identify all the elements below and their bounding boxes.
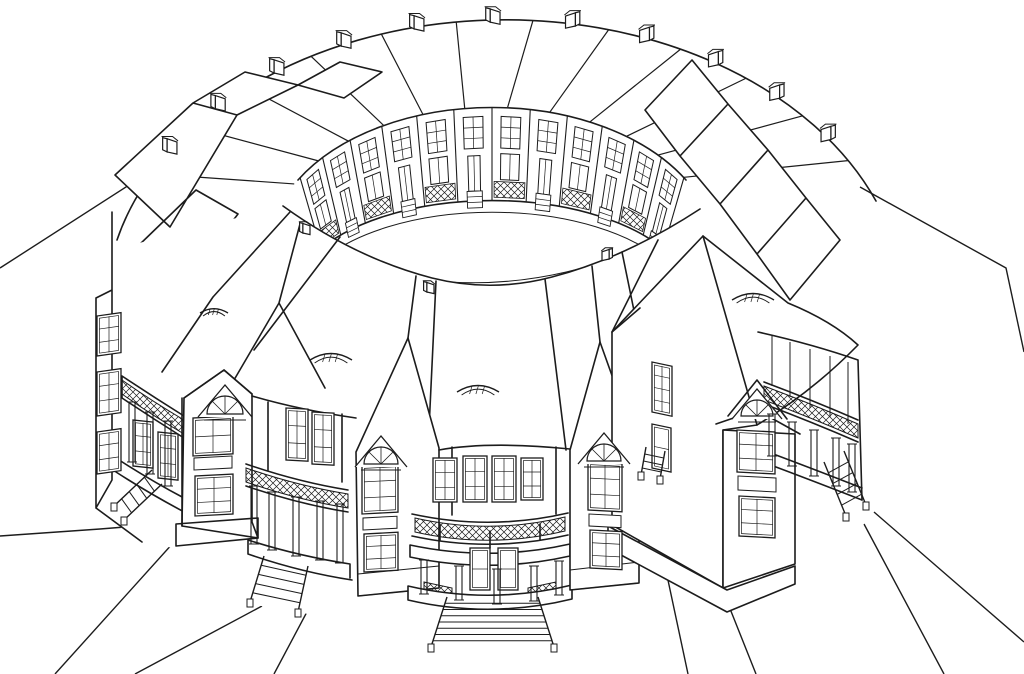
- window-mullion: [577, 165, 580, 190]
- stair-newel: [843, 513, 849, 521]
- window: [195, 474, 233, 516]
- window: [158, 432, 178, 480]
- window: [97, 313, 121, 356]
- window-mullion: [320, 204, 325, 225]
- facade-pilaster: [526, 109, 530, 201]
- window-mullion: [638, 161, 652, 169]
- chimney-side: [410, 15, 414, 29]
- window-mullion: [400, 129, 403, 159]
- door-leaf-split: [404, 166, 408, 200]
- chimney-front: [602, 249, 609, 260]
- window-mullion: [436, 121, 438, 152]
- window: [362, 464, 398, 514]
- stoop-steps: [467, 191, 482, 208]
- chimney-front: [215, 96, 225, 111]
- window: [590, 530, 622, 570]
- door-leaf-split: [656, 206, 663, 234]
- stair-newel: [863, 502, 869, 510]
- window-mullion: [367, 141, 372, 170]
- chimney-side: [718, 50, 722, 64]
- chimney-front: [167, 139, 177, 154]
- stair-newel: [657, 476, 663, 484]
- stair-newel: [247, 599, 253, 607]
- lattice-porch-panel: [425, 183, 456, 203]
- lattice-porch-panel: [561, 188, 591, 210]
- window-mullion: [665, 174, 672, 199]
- chimney-side: [300, 223, 303, 233]
- chimney-side: [424, 282, 427, 292]
- window-mullion: [337, 156, 343, 183]
- window-mullion: [510, 117, 511, 149]
- roof-party-wall-line: [508, 21, 533, 108]
- spandrel-panel: [194, 456, 232, 470]
- chimney-side: [609, 249, 612, 259]
- window-mullion: [464, 138, 483, 139]
- lattice-porch-panel: [621, 207, 646, 232]
- door-leaf-split: [544, 159, 546, 194]
- window-mullion: [312, 187, 323, 196]
- window-mullion: [641, 156, 647, 183]
- courtyard-facade-bays: [300, 107, 684, 250]
- scanned-architectural-drawing-page: Black-and-white axonometric pen drawing …: [0, 0, 1024, 674]
- chimney-side: [831, 125, 835, 139]
- chimney-side: [780, 84, 784, 98]
- window-mullion: [613, 141, 618, 170]
- chimney-side: [649, 26, 653, 40]
- architectural-drawing: Black-and-white axonometric pen drawing …: [0, 0, 1024, 674]
- stoop-steps: [535, 193, 551, 211]
- chimney-front: [708, 52, 718, 67]
- window: [652, 362, 672, 416]
- chimney-front: [566, 13, 576, 28]
- window-mullion: [438, 158, 440, 184]
- roof-party-wall-line: [456, 22, 464, 108]
- spandrel-panel: [738, 476, 776, 492]
- window: [588, 462, 622, 512]
- stoop-steps: [598, 207, 613, 227]
- roof-party-wall-line: [550, 30, 609, 112]
- chimney-front: [303, 223, 310, 234]
- window-mullion: [636, 171, 650, 179]
- chimney-front: [341, 33, 351, 48]
- window-mullion: [663, 178, 674, 188]
- window: [193, 416, 233, 456]
- chimney-front: [274, 60, 284, 75]
- chimney-front: [640, 27, 650, 42]
- window: [463, 456, 487, 502]
- window: [286, 408, 308, 461]
- footpath-line: [860, 187, 1024, 352]
- stair-newel: [295, 609, 301, 617]
- chimney-side: [486, 8, 490, 22]
- window-mullion: [473, 117, 474, 149]
- window: [312, 412, 334, 465]
- window-mullion: [372, 175, 376, 199]
- lattice-porch-panel: [494, 181, 525, 198]
- stoop-steps: [401, 199, 417, 218]
- chimney-side: [337, 32, 341, 46]
- chimney-side: [575, 12, 579, 26]
- window-mullion: [581, 129, 584, 159]
- window: [739, 496, 775, 538]
- window-mullion: [501, 138, 520, 139]
- window: [133, 420, 153, 468]
- chimney-front: [490, 9, 500, 24]
- facade-pilaster: [350, 140, 365, 223]
- chimney-side: [270, 59, 274, 73]
- door-leaf-split: [474, 156, 475, 191]
- spandrel-panel: [363, 516, 397, 530]
- window-mullion: [332, 161, 346, 169]
- stair-newel: [638, 472, 644, 480]
- footpath-line: [135, 606, 262, 674]
- stair-newel: [111, 503, 117, 511]
- window-mullion: [510, 154, 511, 180]
- window: [433, 458, 457, 502]
- chimney-side: [163, 138, 167, 152]
- chimney-side: [211, 94, 215, 108]
- footpath-line: [874, 512, 1024, 642]
- chimney-front: [770, 85, 780, 100]
- window: [470, 548, 490, 590]
- chimney-front: [427, 282, 434, 293]
- chimney-front: [414, 16, 424, 31]
- window: [97, 369, 121, 416]
- window-mullion: [635, 188, 640, 210]
- footpath-line: [55, 532, 183, 674]
- window: [97, 429, 121, 474]
- door-leaf-split: [606, 177, 611, 209]
- window: [364, 532, 398, 572]
- window: [521, 458, 543, 500]
- window-mullion: [661, 187, 672, 196]
- stair-newel: [121, 517, 127, 525]
- chimney-front: [821, 126, 831, 141]
- window-mullion: [309, 178, 320, 188]
- spandrel-panel: [589, 514, 621, 528]
- footpath-line: [864, 524, 944, 674]
- window-mullion: [546, 121, 548, 152]
- window-mullion: [334, 171, 348, 179]
- stair-newel: [428, 644, 434, 652]
- window-mullion: [313, 174, 320, 199]
- facade-pilaster: [417, 115, 425, 205]
- roof-party-wall-line: [381, 34, 422, 114]
- stair-newel: [551, 644, 557, 652]
- window: [492, 456, 516, 502]
